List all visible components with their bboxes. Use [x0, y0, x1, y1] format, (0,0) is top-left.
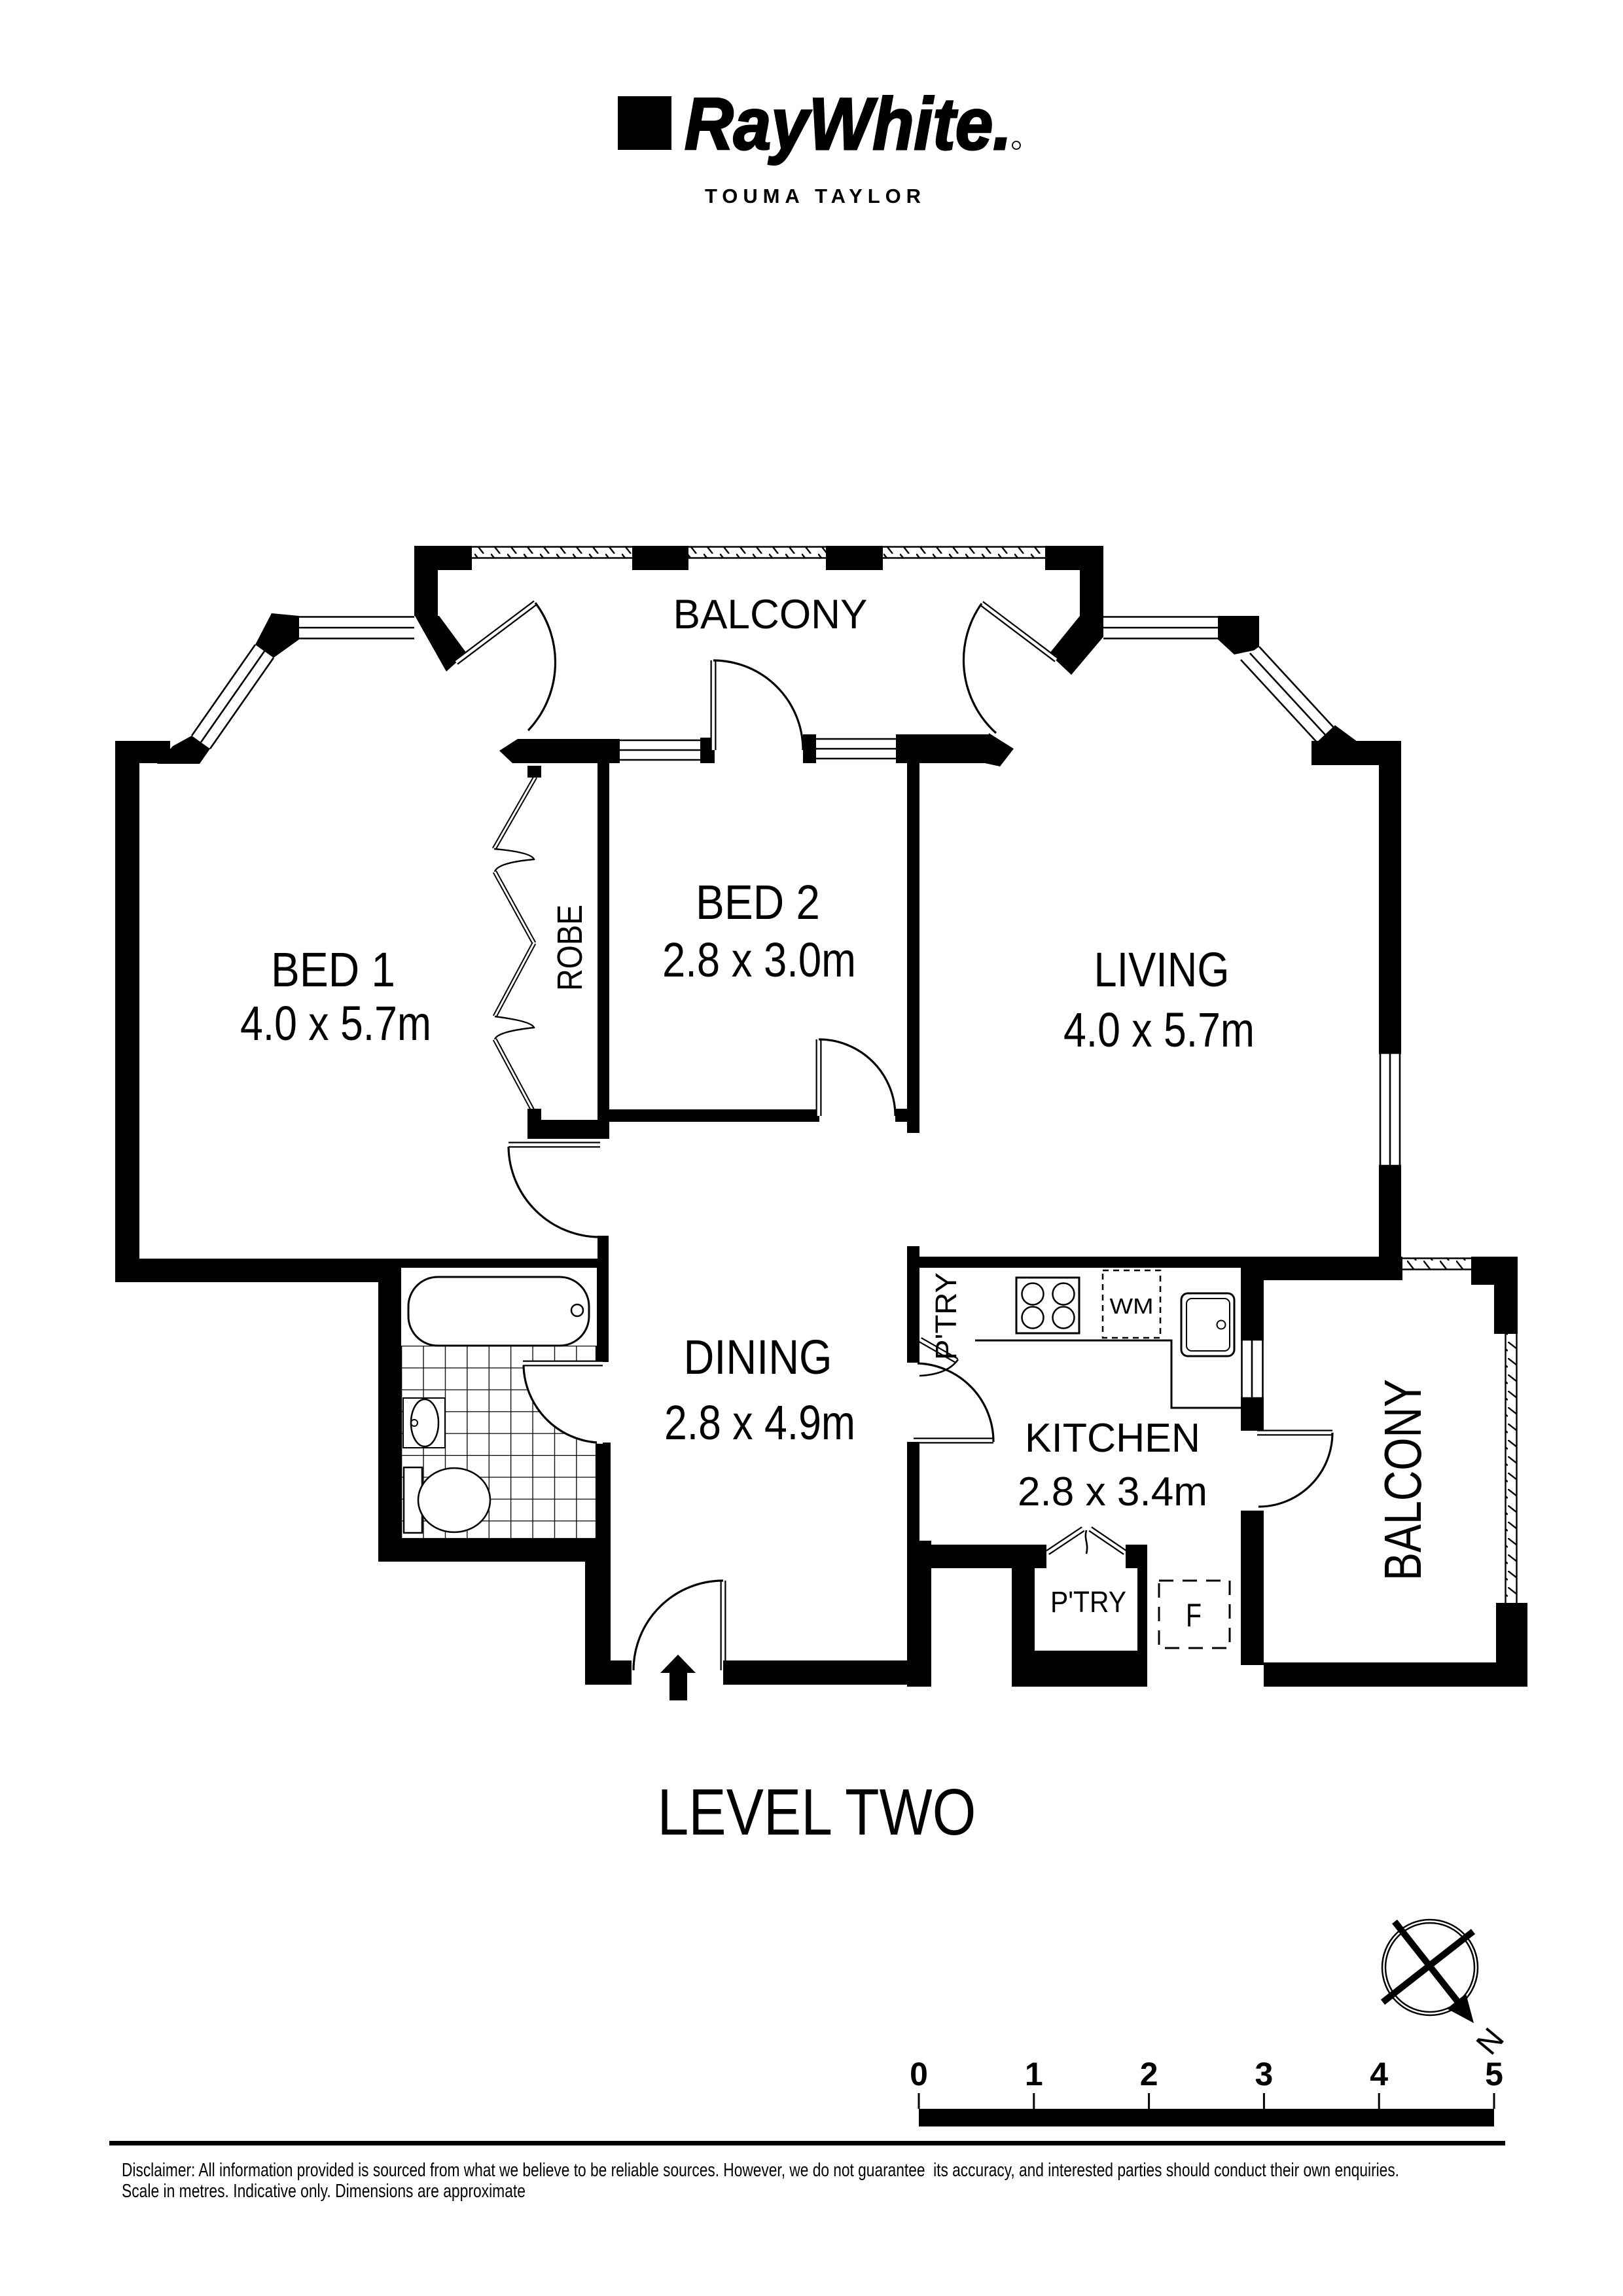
svg-text:P'TRY: P'TRY: [929, 1272, 963, 1360]
svg-text:4: 4: [1370, 2056, 1388, 2092]
svg-text:LEVEL TWO: LEVEL TWO: [658, 1776, 976, 1849]
svg-text:RayWhite.: RayWhite.: [685, 83, 1012, 165]
svg-text:2: 2: [1140, 2056, 1158, 2092]
svg-text:2.8 x 3.0m: 2.8 x 3.0m: [662, 933, 856, 987]
svg-text:1: 1: [1025, 2056, 1043, 2092]
svg-text:3: 3: [1255, 2056, 1273, 2092]
svg-text:2.8 x 4.9m: 2.8 x 4.9m: [664, 1395, 855, 1450]
svg-text:BED 2: BED 2: [696, 875, 820, 929]
svg-text:WM: WM: [1110, 1294, 1154, 1318]
svg-text:0: 0: [910, 2056, 928, 2092]
svg-text:BED 1: BED 1: [271, 942, 395, 997]
svg-text:BALCONY: BALCONY: [1374, 1379, 1432, 1581]
svg-text:2.8 x 3.4m: 2.8 x 3.4m: [1018, 1469, 1207, 1515]
svg-text:F: F: [1186, 1597, 1202, 1634]
svg-text:4.0 x 5.7m: 4.0 x 5.7m: [240, 996, 431, 1050]
svg-text:P'TRY: P'TRY: [1050, 1585, 1126, 1619]
svg-text:LIVING: LIVING: [1094, 942, 1230, 997]
svg-text:BALCONY: BALCONY: [673, 592, 868, 637]
svg-text:TOUMA TAYLOR: TOUMA TAYLOR: [705, 185, 921, 207]
svg-text:Disclaimer: All information pr: Disclaimer: All information provided is …: [122, 2160, 1399, 2181]
svg-text:Scale in metres. Indicative on: Scale in metres. Indicative only. Dimens…: [122, 2181, 526, 2202]
svg-text:KITCHEN: KITCHEN: [1025, 1416, 1200, 1461]
svg-text:4.0 x 5.7m: 4.0 x 5.7m: [1063, 1003, 1255, 1057]
svg-text:5: 5: [1485, 2056, 1503, 2092]
svg-text:ROBE: ROBE: [550, 905, 590, 991]
svg-text:DINING: DINING: [684, 1330, 832, 1384]
svg-text:N: N: [1469, 2021, 1510, 2061]
